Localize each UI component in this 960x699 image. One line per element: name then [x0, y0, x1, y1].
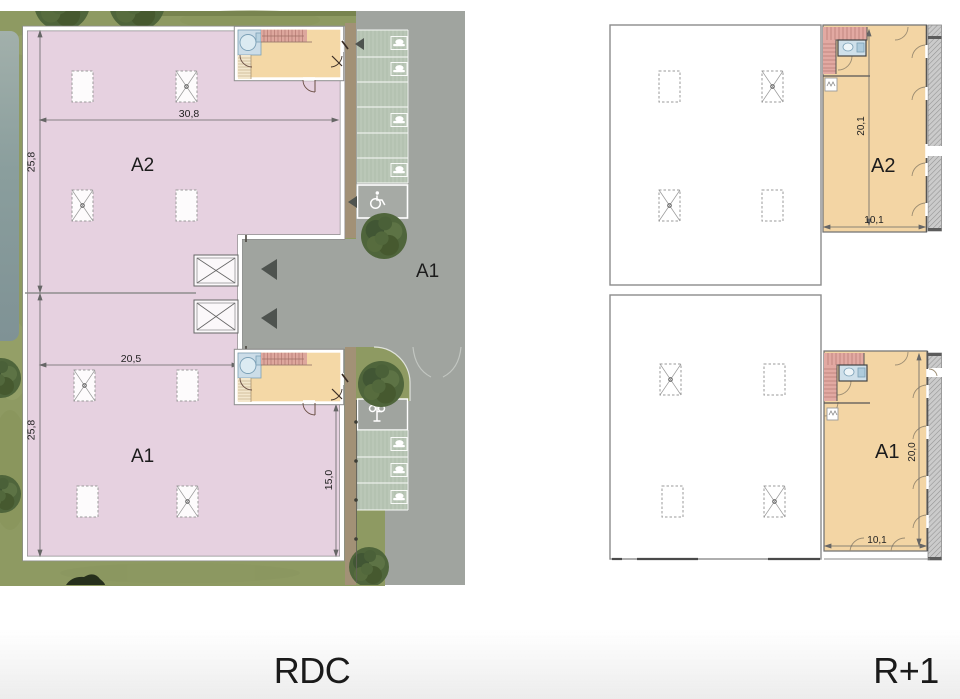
svg-text:15,0: 15,0 [323, 470, 335, 491]
svg-text:30,8: 30,8 [179, 108, 200, 120]
svg-text:25,8: 25,8 [26, 152, 38, 173]
svg-text:20,1: 20,1 [856, 116, 867, 136]
svg-text:20,5: 20,5 [121, 353, 142, 365]
svg-text:A1: A1 [875, 441, 899, 463]
svg-text:10,1: 10,1 [864, 215, 884, 226]
svg-text:20,0: 20,0 [907, 442, 918, 462]
svg-text:A1: A1 [416, 261, 439, 282]
svg-text:A2: A2 [131, 155, 154, 176]
svg-text:A2: A2 [871, 155, 895, 177]
svg-text:A1: A1 [131, 446, 154, 467]
svg-text:10,1: 10,1 [867, 535, 887, 546]
svg-text:25,8: 25,8 [26, 420, 38, 441]
